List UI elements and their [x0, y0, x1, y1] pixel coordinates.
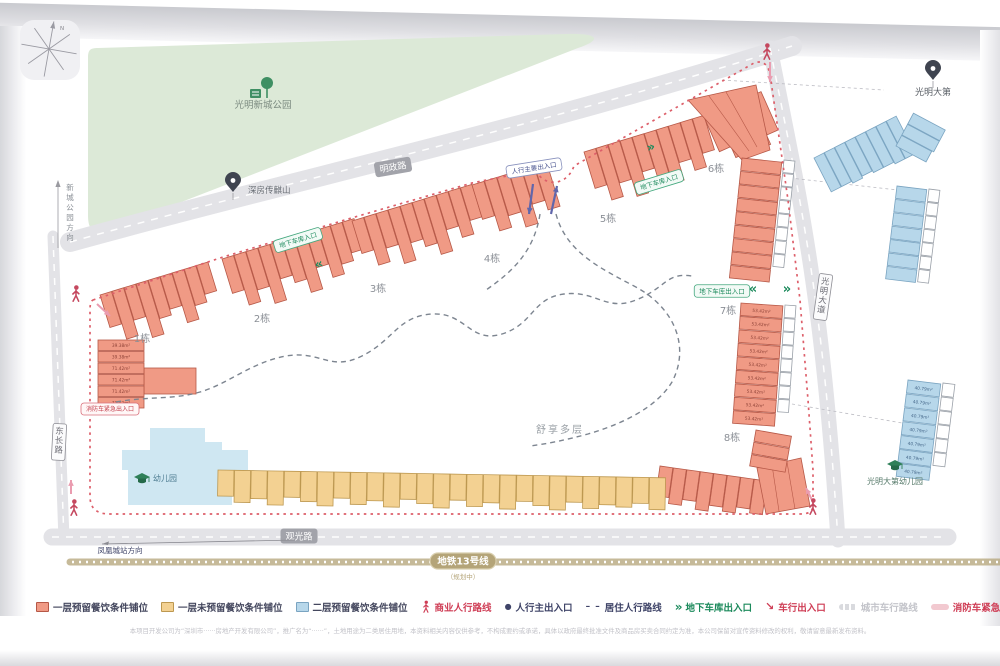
building-number-label: 6栋 [708, 162, 724, 175]
building-number-label: 3栋 [370, 282, 386, 295]
building-number-label: 5栋 [600, 212, 616, 225]
legend-car-arrow-icon: ↘ [765, 602, 774, 612]
building-block [935, 439, 948, 453]
entrance-badge: 消防车紧急出入口 [81, 403, 139, 415]
person-head [811, 498, 816, 503]
area-note-label: 舒享多层 [536, 423, 584, 436]
legend-item: 一层未预留餐饮条件铺位 [161, 600, 283, 614]
building-block [779, 372, 791, 385]
building-block [383, 473, 400, 507]
legend-person-icon [421, 600, 431, 614]
building-number-label: 2栋 [254, 312, 270, 325]
site-plan: 光明新城公园39.38m²39.38m²71.42m²71.42m²71.42m… [0, 0, 1000, 666]
legend-item: 一层预留餐饮条件铺位 [36, 600, 148, 614]
building-block [773, 254, 785, 268]
unit-area-label: 71.42m² [112, 366, 130, 372]
building-block [941, 383, 954, 397]
building-block [483, 475, 499, 503]
park-direction-arrow [55, 180, 60, 187]
building-block [926, 202, 938, 216]
legend-item: 消防车紧急出入口 [931, 600, 1000, 614]
park-direction-label: 向 [66, 232, 74, 242]
legend-label: 一层预留餐饮条件铺位 [53, 600, 148, 614]
disclaimer-text: 本项目开发公司为“深圳市······房地产开发有限公司”，推广名为“······… [60, 626, 940, 635]
pedestrian-icon [71, 499, 77, 515]
building-block [599, 477, 615, 505]
building-block [300, 471, 317, 501]
parking-chevron-icon: « [749, 282, 757, 297]
building-block [433, 474, 450, 508]
building-block [251, 471, 267, 499]
building-block [919, 256, 931, 270]
legend-dashes-icon: – – [586, 602, 601, 612]
badge-label: 地下车库出入口 [699, 286, 745, 295]
building-block [782, 332, 794, 345]
legend-label: 商业人行路线 [435, 600, 492, 614]
park-direction-label: 城 [66, 193, 74, 202]
badge-char: 路 [54, 445, 64, 456]
kindergarten-label: 幼儿园 [153, 473, 177, 483]
unit-area-label: 71.42m² [112, 378, 130, 384]
building-block [284, 471, 300, 497]
building-block [936, 425, 949, 439]
building-block [933, 452, 946, 466]
legend-item: ●人行主出入口 [505, 600, 573, 614]
building-number-label: 7栋 [720, 304, 736, 317]
building-block [940, 397, 953, 411]
pedestrian-icon [73, 285, 79, 301]
building-block [533, 476, 550, 506]
pin-label-right: 光明大第 [915, 86, 951, 98]
building-column-salmon [750, 430, 792, 472]
metro-label: 地铁13号线 [437, 556, 489, 568]
legend-label: 一层未预留餐饮条件铺位 [178, 600, 283, 614]
building-block [317, 472, 334, 506]
person-body [810, 503, 816, 514]
building-block [781, 345, 793, 358]
entry-arrow-head [68, 480, 74, 486]
legend-road-swatch [839, 604, 857, 610]
building-block [500, 475, 517, 509]
building-number-label: 4栋 [484, 252, 500, 265]
building-row-salmon [655, 466, 767, 519]
residential-path [530, 214, 680, 446]
building-number-label: 1栋 [134, 332, 150, 345]
legend-item: 城市车行路线 [839, 600, 918, 614]
building-block [350, 472, 367, 504]
person-body [423, 604, 427, 612]
person-head [74, 285, 79, 290]
compass-north-label: N [60, 26, 64, 32]
park-label: 光明新城公园 [234, 99, 291, 111]
person-body [71, 504, 77, 515]
person-body [73, 290, 79, 301]
boundary-tie-line [792, 404, 908, 424]
building-row-yellow [217, 470, 665, 512]
legend-swatch-blue [296, 602, 309, 612]
building-block [218, 470, 234, 496]
building-row-salmon [222, 219, 371, 315]
building-block [921, 243, 933, 257]
building-block [616, 477, 633, 507]
legend-label: 居住人行路线 [605, 600, 662, 614]
right-kindergarten-label: 光明大第幼儿园 [867, 476, 923, 486]
compass-spoke [28, 28, 70, 70]
building-block [938, 411, 951, 425]
building-block [632, 477, 648, 503]
building-block [777, 214, 789, 228]
legend-swatch-yellow [161, 602, 174, 612]
building-block [918, 269, 930, 283]
legend-label: 二层预留餐饮条件铺位 [313, 600, 408, 614]
park-direction-label: 园 [66, 213, 74, 222]
person-head [72, 499, 77, 504]
legend-item: »地下车库出入口 [675, 600, 752, 614]
park-direction-label: 公 [66, 203, 74, 212]
pin-dot [931, 66, 936, 71]
badge-label: 消防车紧急出入口 [86, 405, 134, 413]
road-name-bottom: 观光路 [281, 529, 318, 544]
building-block [549, 476, 566, 510]
building-column-salmon: 39.38m²39.38m²71.42m²71.42m²71.42m²71.42… [98, 340, 144, 408]
legend-item: – –居住人行路线 [586, 600, 662, 614]
building-block [234, 470, 251, 502]
building-block [923, 229, 935, 243]
pedestrian-icon [810, 498, 816, 514]
building-block [927, 189, 939, 203]
cap-base [891, 466, 899, 471]
building-block [267, 471, 284, 505]
legend-dot-icon: ● [505, 603, 512, 611]
building-block [367, 473, 383, 501]
building-block [776, 227, 788, 241]
legend-label: 消防车紧急出入口 [953, 600, 1000, 614]
pedestrian-icon [423, 601, 427, 613]
park-direction-label: 新 [66, 182, 74, 192]
pin-dot [231, 178, 236, 183]
cap-base [138, 479, 146, 484]
metro-note: （规划中） [447, 572, 480, 581]
building-block [450, 474, 466, 500]
building-block [417, 473, 434, 503]
building-block [780, 359, 792, 372]
parking-chevron-icon: » [783, 282, 791, 297]
building-block [784, 305, 796, 318]
legend-label: 城市车行路线 [861, 600, 918, 614]
building-number-label: 8栋 [724, 431, 740, 444]
building-block [516, 475, 532, 501]
building-row-blue [814, 116, 915, 195]
legend: 一层预留餐饮条件铺位一层未预留餐饮条件铺位二层预留餐饮条件铺位商业人行路线●人行… [36, 597, 986, 617]
compass-rose [17, 17, 82, 82]
person-head [424, 601, 427, 604]
building-block [583, 476, 600, 508]
legend-chevrons-icon: » [675, 602, 682, 612]
building-column-salmon: 53.42m²53.42m²53.42m²53.42m²53.42m²53.42… [733, 303, 783, 426]
building-block [649, 478, 666, 510]
legend-swatch-orange [36, 602, 49, 612]
entrance-badge: 地下车库出入口 [694, 285, 750, 298]
building-block [566, 476, 582, 502]
unit-area-label: 71.42m² [112, 389, 130, 395]
building-block [783, 160, 795, 174]
legend-item: ↘车行出入口 [765, 600, 826, 614]
building-block [400, 473, 416, 499]
building-block [781, 173, 793, 187]
person-head [765, 43, 770, 48]
legend-fire-swatch [931, 604, 949, 610]
unit-area-label: 39.38m² [112, 343, 130, 349]
building-block [774, 241, 786, 255]
building-block [778, 399, 790, 412]
building-block [778, 386, 790, 399]
road-name-left: 东长路 [51, 423, 66, 460]
legend-item: 二层预留餐饮条件铺位 [296, 600, 408, 614]
unit-area-label: 39.38m² [112, 355, 130, 361]
pin-icon-right [925, 60, 941, 88]
metro-badge: 地铁13号线 [430, 553, 496, 569]
compass-north-arrow [50, 21, 56, 29]
site-plan-canvas: 光明新城公园39.38m²39.38m²71.42m²71.42m²71.42m… [0, 0, 1000, 666]
legend-item: 商业人行路线 [421, 600, 492, 614]
building-block [466, 474, 483, 506]
legend-label: 车行出入口 [778, 600, 826, 614]
park-direction-label: 方 [66, 222, 74, 232]
building-block [334, 472, 350, 498]
building-block [783, 318, 795, 331]
building-row-salmon [100, 262, 224, 349]
station-direction-label: 凤凰城站方向 [98, 545, 143, 555]
building-block [144, 368, 196, 394]
pin-label-left: 深房传麒山 [248, 185, 291, 196]
legend-label: 地下车库出入口 [685, 600, 752, 614]
legend-label: 人行主出入口 [516, 600, 573, 614]
building-block [924, 216, 936, 230]
building-row-salmon [584, 115, 721, 207]
